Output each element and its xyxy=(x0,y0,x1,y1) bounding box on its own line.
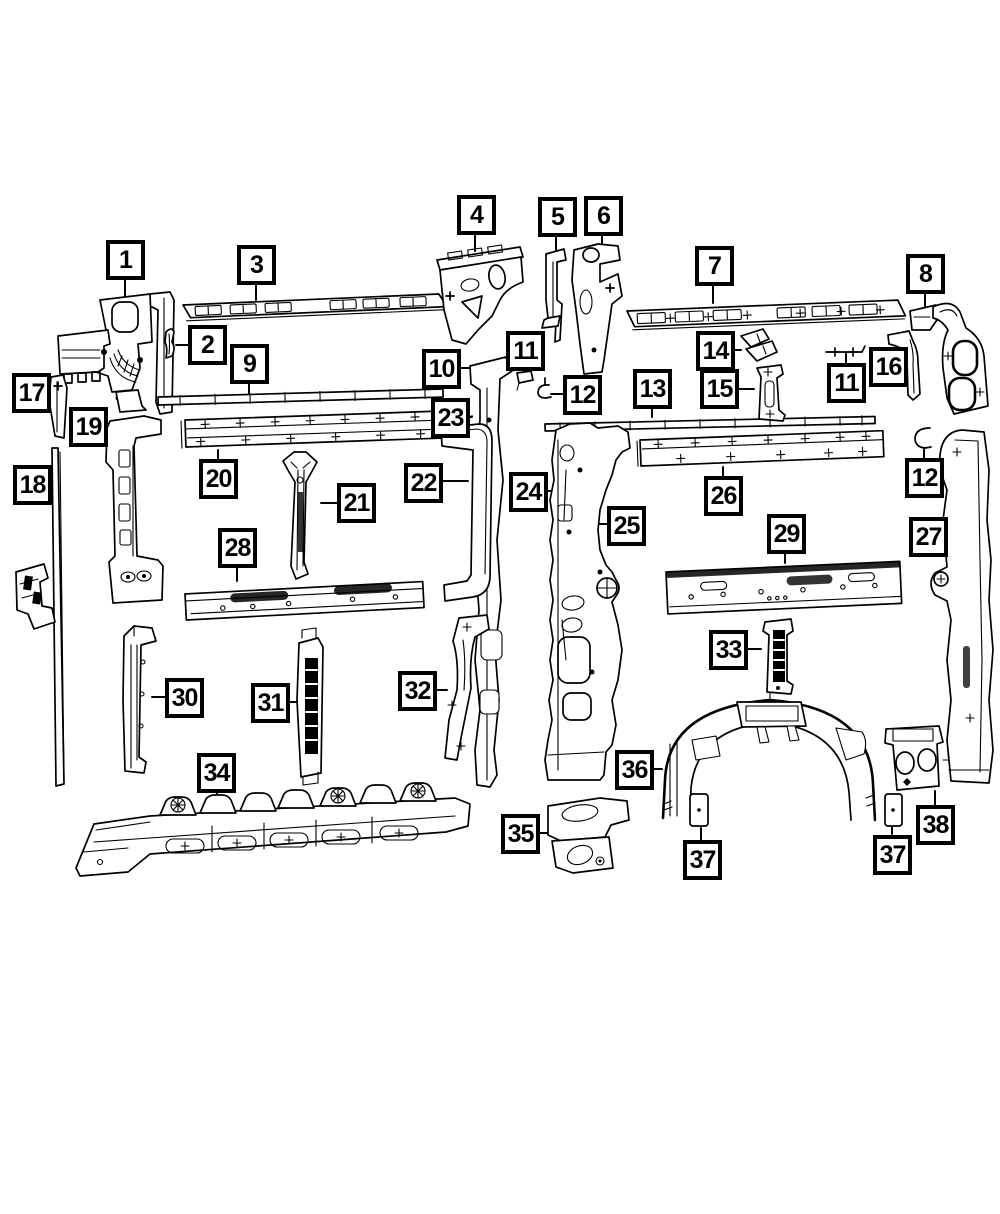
callout-box-24[interactable]: 24 xyxy=(509,472,548,512)
part-38-plate xyxy=(885,726,948,790)
callout-box-1[interactable]: 1 xyxy=(106,240,145,280)
callout-box-17[interactable]: 17 xyxy=(12,373,51,413)
callout-box-11b[interactable]: 11 xyxy=(827,363,866,403)
part-35-bracket xyxy=(548,798,629,873)
part-8-quarter-lamp-panel xyxy=(910,303,988,414)
part-12-hook xyxy=(538,378,551,398)
callout-box-4[interactable]: 4 xyxy=(457,195,496,235)
part-30-rail xyxy=(123,626,156,773)
callout-box-33[interactable]: 33 xyxy=(709,630,748,670)
part-19-pillar-lower xyxy=(106,416,163,603)
parts-diagram-canvas: 1 3 4 5 6 7 8 2 9 10 11 12 13 14 15 11 1… xyxy=(0,0,1000,1214)
part-2-hook-bracket xyxy=(165,329,174,358)
callout-box-27[interactable]: 27 xyxy=(909,517,948,557)
part-31-rail xyxy=(297,628,323,785)
part-11-clip xyxy=(517,371,533,390)
callout-box-5[interactable]: 5 xyxy=(538,197,577,237)
callout-box-32[interactable]: 32 xyxy=(398,671,437,711)
callout-box-12a[interactable]: 12 xyxy=(563,375,602,415)
callout-box-13[interactable]: 13 xyxy=(633,369,672,409)
callout-box-10[interactable]: 10 xyxy=(422,349,461,389)
callout-box-21[interactable]: 21 xyxy=(337,483,376,523)
callout-box-38[interactable]: 38 xyxy=(916,805,955,845)
part-26-sill-rail xyxy=(637,431,884,466)
part-33-bracket xyxy=(763,619,793,694)
part-29-rear-sill xyxy=(666,561,902,614)
part-37-plate-left xyxy=(690,794,708,826)
callout-box-22[interactable]: 22 xyxy=(404,463,443,503)
part-21-y-brace xyxy=(283,452,317,579)
part-34-rocker-panel xyxy=(76,783,470,876)
callout-box-37b[interactable]: 37 xyxy=(873,835,912,875)
part-17-strip xyxy=(49,375,67,438)
callout-box-8[interactable]: 8 xyxy=(906,254,945,294)
part-3-roof-side-rail xyxy=(183,294,448,321)
parts-line-art xyxy=(0,0,1000,1214)
callout-box-26[interactable]: 26 xyxy=(704,476,743,516)
callout-box-30[interactable]: 30 xyxy=(165,678,204,718)
callout-box-28[interactable]: 28 xyxy=(218,528,257,568)
callout-box-11a[interactable]: 11 xyxy=(506,331,545,371)
part-22-corner-frame xyxy=(441,424,492,601)
callout-box-37a[interactable]: 37 xyxy=(683,840,722,880)
callout-box-23[interactable]: 23 xyxy=(431,398,470,438)
callout-box-3[interactable]: 3 xyxy=(237,245,276,285)
part-4-cowl-bracket xyxy=(437,245,523,344)
callout-box-12b[interactable]: 12 xyxy=(905,458,944,498)
callout-box-34[interactable]: 34 xyxy=(197,753,236,793)
part-1-a-pillar-assembly xyxy=(58,292,174,414)
callout-box-2[interactable]: 2 xyxy=(188,325,227,365)
callout-box-15[interactable]: 15 xyxy=(700,369,739,409)
part-24-25-b-pillar xyxy=(545,423,630,780)
callout-box-18[interactable]: 18 xyxy=(13,465,52,505)
callout-box-36[interactable]: 36 xyxy=(615,750,654,790)
callout-box-9[interactable]: 9 xyxy=(230,344,269,384)
part-28-lower-sill xyxy=(185,582,424,620)
callout-box-35[interactable]: 35 xyxy=(501,814,540,854)
part-18-lower-bracket xyxy=(16,564,55,629)
callout-box-25[interactable]: 25 xyxy=(607,506,646,546)
callout-box-7[interactable]: 7 xyxy=(695,246,734,286)
callout-box-31[interactable]: 31 xyxy=(251,683,290,723)
callout-box-14[interactable]: 14 xyxy=(696,331,735,371)
callout-box-19[interactable]: 19 xyxy=(69,407,108,447)
part-5-pillar-strip xyxy=(542,249,566,342)
callout-box-20[interactable]: 20 xyxy=(199,459,238,499)
callout-box-29[interactable]: 29 xyxy=(767,514,806,554)
part-9-upper-rail-strip xyxy=(158,388,443,406)
part-15-bracket xyxy=(757,365,785,421)
part-14-bracket xyxy=(741,329,777,361)
callout-box-6[interactable]: 6 xyxy=(584,196,623,236)
part-6-pillar-inner xyxy=(572,244,622,374)
part-7-roof-rail-rear xyxy=(627,300,906,330)
callout-box-16[interactable]: 16 xyxy=(869,347,908,387)
part-20-sill-rail xyxy=(181,411,443,448)
part-37-plate-right xyxy=(885,794,902,826)
